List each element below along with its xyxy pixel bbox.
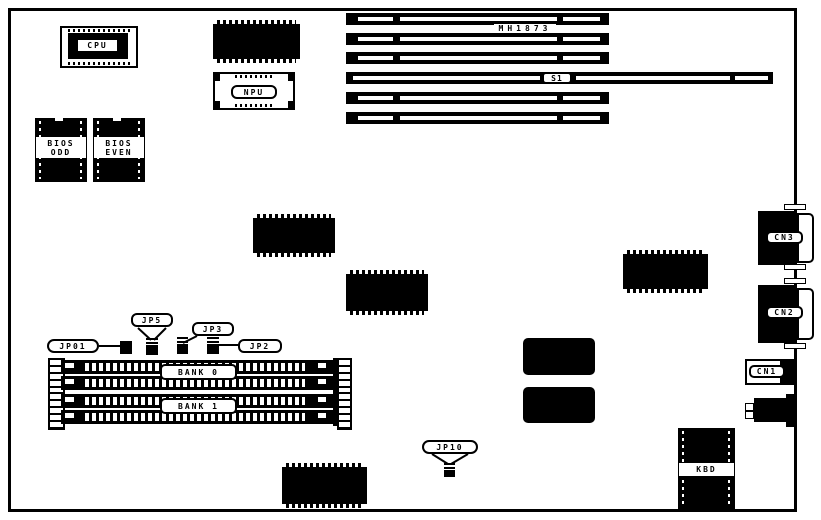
bios-odd-line2: ODD — [51, 148, 71, 157]
cpu-label: CPU — [78, 40, 117, 51]
kbd-label-band: KBD — [679, 463, 734, 476]
npu-label: NPU — [231, 85, 277, 99]
slot-slit — [563, 37, 600, 41]
ic-chip-b — [346, 274, 428, 311]
ic-chip-e — [523, 387, 595, 423]
cn1-label: CN1 — [749, 365, 785, 378]
bank1-label: BANK 1 — [160, 398, 237, 414]
jumper-block-jp2 — [207, 337, 219, 354]
jumper-label-jp01: JP01 — [47, 339, 99, 353]
slot-slit — [358, 56, 393, 60]
cpu-pin-row-bottom — [68, 62, 130, 65]
expansion-slot-5 — [346, 92, 609, 104]
slot-slit — [353, 76, 540, 80]
slot-slit — [400, 56, 557, 60]
slot-slit — [563, 56, 600, 60]
npu-socket: NPU — [213, 72, 295, 110]
bios-odd-line1: BIOS — [47, 139, 74, 148]
cpu-pin-row-top — [68, 29, 130, 32]
jumper-block-jp01 — [120, 341, 132, 354]
cn2-screw-tab-top — [784, 278, 806, 284]
bios-odd-label: BIOS ODD — [36, 137, 86, 158]
slot-slit — [358, 17, 393, 21]
jumper-label-jp5: JP5 — [131, 313, 173, 327]
bank0-label: BANK 0 — [160, 364, 237, 380]
simm-bank-0: BANK 0 — [48, 358, 348, 392]
expansion-slot-1 — [346, 13, 609, 25]
slot-slit — [358, 116, 393, 120]
expansion-slot-6 — [346, 112, 609, 124]
jumper-label-jp2: JP2 — [238, 339, 282, 353]
simm-contacts — [85, 413, 305, 421]
simm-endcap-right — [337, 392, 352, 430]
npu-pin-row-bottom — [235, 104, 275, 107]
cpu-die: CPU — [68, 33, 128, 59]
corner-mark — [215, 101, 220, 108]
simm-contacts — [85, 379, 305, 387]
chip-notch — [55, 118, 63, 121]
power-jack-flange — [786, 394, 794, 427]
ic-chip-d — [523, 338, 595, 375]
cn2-screw-tab-bottom — [784, 343, 806, 349]
corner-mark — [288, 74, 293, 81]
jumper-block-jp3 — [177, 337, 188, 354]
jumper-block-jp10 — [444, 463, 455, 477]
bios-even-chip: BIOS EVEN — [93, 118, 145, 182]
corner-mark — [288, 101, 293, 108]
simm-bank-1: BANK 1 — [48, 392, 348, 426]
jumper-block-jp5 — [146, 338, 158, 355]
chip-notch — [113, 118, 121, 121]
expansion-slot-2 — [346, 33, 609, 45]
board-model-label: MH1873 — [494, 24, 556, 33]
slot-slit — [563, 17, 600, 21]
bios-even-label: BIOS EVEN — [94, 137, 144, 158]
ic-chip-bottom — [282, 467, 367, 504]
slot-slit — [563, 96, 600, 100]
slot-s1-label: S1 — [542, 72, 572, 84]
jack-pin — [745, 411, 754, 419]
jack-pin — [745, 403, 754, 411]
bios-even-line2: EVEN — [105, 148, 132, 157]
corner-mark — [215, 74, 220, 81]
simm-endcap-right — [337, 358, 352, 396]
slot-slit — [358, 96, 393, 100]
slot-slit — [358, 37, 393, 41]
cpu-socket: CPU — [60, 26, 138, 68]
jumper-label-jp3: JP3 — [192, 322, 234, 336]
ic-chip-top — [213, 24, 300, 59]
expansion-slot-3 — [346, 52, 609, 64]
bios-odd-chip: BIOS ODD — [35, 118, 87, 182]
bios-even-line1: BIOS — [105, 139, 132, 148]
slot-slit — [735, 76, 768, 80]
ic-chip-a — [253, 218, 335, 253]
slot-slit — [563, 116, 600, 120]
slot-slit — [400, 17, 557, 21]
slot-slit — [400, 96, 557, 100]
npu-pin-row-top — [235, 75, 275, 78]
cn3-screw-tab-top — [784, 204, 806, 210]
cn3-label: CN3 — [766, 231, 803, 244]
ic-chip-c — [623, 254, 708, 289]
slot-slit — [400, 37, 557, 41]
cn2-label: CN2 — [766, 306, 803, 319]
kbd-label: KBD — [696, 465, 716, 474]
slot-slit — [576, 76, 730, 80]
keyboard-connector-kbd: KBD — [678, 428, 735, 510]
motherboard-diagram: CPU NPU BIOS ODD BIOS EVEN MH1873 — [0, 0, 821, 520]
expansion-slot-s1: S1 — [346, 72, 773, 84]
slot-slit — [400, 116, 557, 120]
jumper-label-jp10: JP10 — [422, 440, 478, 454]
power-jack-body — [754, 398, 787, 422]
